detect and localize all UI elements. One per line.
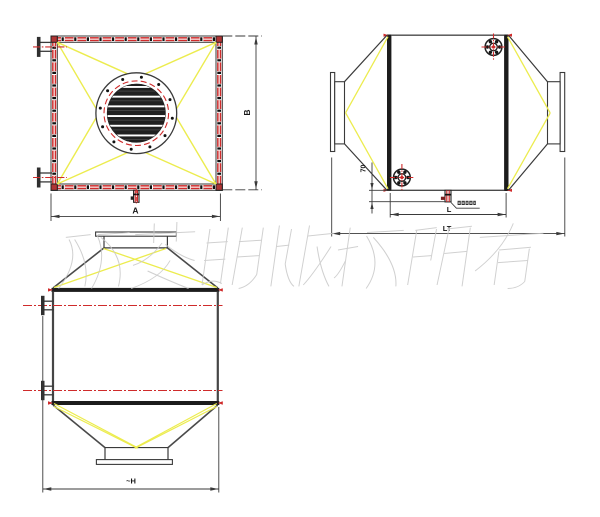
svg-text:70: 70 <box>361 165 368 173</box>
svg-text:~H: ~H <box>126 477 136 486</box>
svg-text:A: A <box>132 206 138 216</box>
svg-text:B: B <box>242 109 252 115</box>
svg-text:L: L <box>447 205 452 214</box>
